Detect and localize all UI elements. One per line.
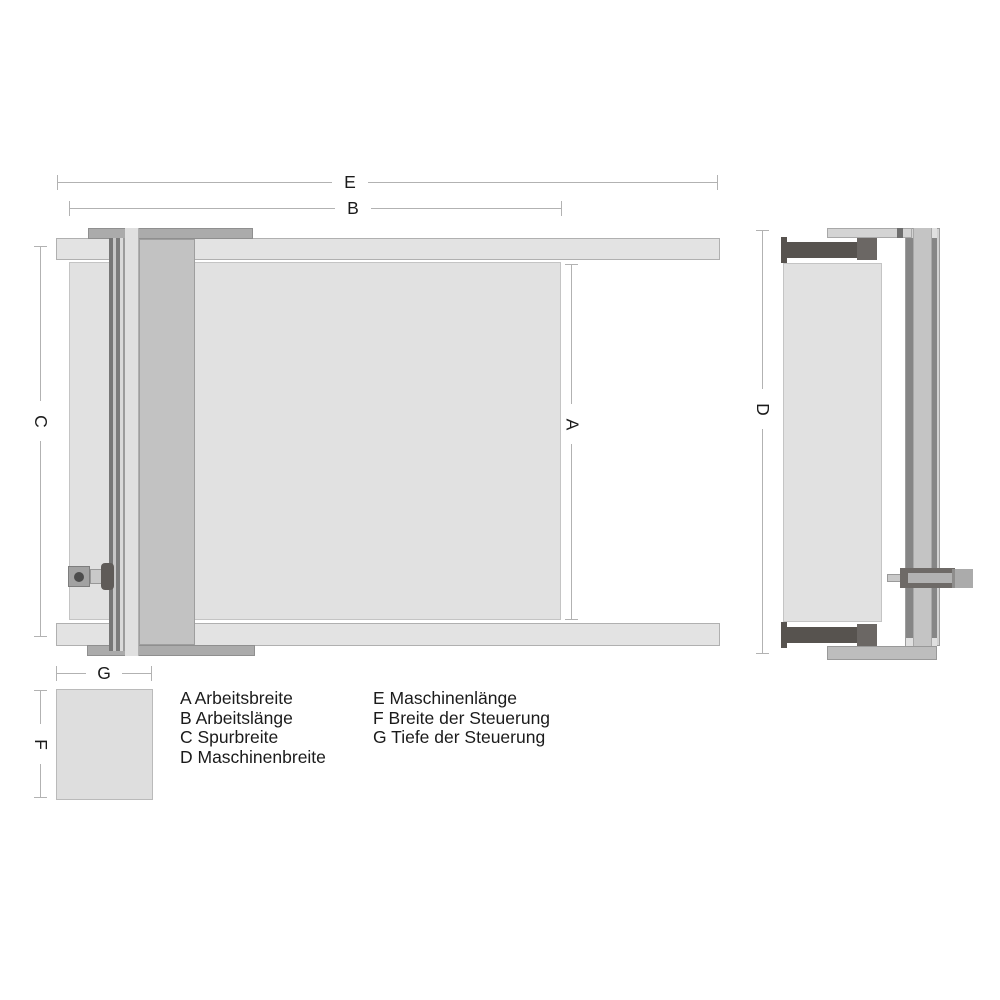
legend-column-2: E Maschinenlänge F Breite der Steuerung …	[373, 689, 550, 748]
control-box	[56, 689, 153, 800]
strip-right-end-cap-top	[932, 228, 937, 238]
dim-E: E	[57, 175, 718, 190]
dim-A-tick-bottom	[565, 619, 578, 620]
strip-right-end-cap-bottom	[932, 638, 937, 646]
dim-C-label: C	[34, 401, 47, 441]
guide-strip-light	[125, 228, 139, 656]
dim-F-tick-bottom	[34, 797, 47, 798]
dim-E-label: E	[332, 175, 368, 190]
dim-E-tick-right	[717, 175, 718, 190]
dim-A: A	[564, 264, 579, 620]
axle-mount	[68, 566, 90, 587]
dimension-diagram: E B C A	[0, 0, 1000, 1000]
legend-item-D: D Maschinenbreite	[180, 748, 326, 768]
side-axle-top-shaft	[786, 242, 858, 258]
side-panel	[783, 263, 882, 622]
legend-item-F: F Breite der Steuerung	[373, 709, 550, 729]
legend-item-A: A Arbeitsbreite	[180, 689, 326, 709]
dim-G-tick-right	[151, 666, 152, 681]
axle-knob	[101, 563, 114, 590]
legend-item-G: G Tiefe der Steuerung	[373, 728, 550, 748]
dim-G-label: G	[86, 666, 122, 681]
legend-item-C: C Spurbreite	[180, 728, 326, 748]
legend-column-1: A Arbeitsbreite B Arbeitslänge C Spurbre…	[180, 689, 326, 767]
side-axle-bottom-block	[857, 624, 877, 646]
dim-F: F	[33, 690, 48, 798]
side-axle-top-block	[857, 238, 877, 260]
dim-G: G	[56, 666, 152, 681]
dim-A-label: A	[566, 404, 578, 444]
dim-F-label: F	[35, 724, 46, 764]
dim-C-tick-bottom	[34, 636, 47, 637]
dim-C: C	[33, 246, 48, 637]
side-drive-inner-bar	[908, 573, 952, 583]
side-top-rail-clamp	[897, 228, 903, 238]
side-bottom-rail	[827, 646, 937, 660]
dim-B-label: B	[335, 201, 371, 216]
strip-left-end-cap	[906, 638, 913, 646]
dim-D-tick-bottom	[756, 653, 769, 654]
axle-bolt-icon	[74, 572, 84, 582]
side-axle-bottom-shaft	[786, 627, 858, 643]
dim-B-tick-right	[561, 201, 562, 216]
drive-column	[139, 239, 195, 645]
side-drive-block	[952, 569, 973, 588]
dim-D: D	[755, 230, 770, 654]
dim-D-label: D	[756, 389, 769, 429]
legend-item-B: B Arbeitslänge	[180, 709, 326, 729]
legend-item-E: E Maschinenlänge	[373, 689, 550, 709]
dim-B: B	[69, 201, 562, 216]
